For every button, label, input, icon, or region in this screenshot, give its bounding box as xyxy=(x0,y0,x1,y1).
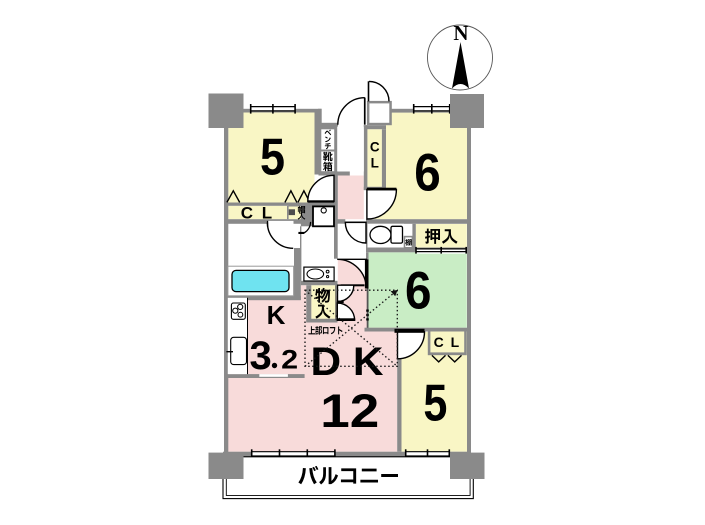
svg-text:2: 2 xyxy=(281,345,298,375)
svg-text:6: 6 xyxy=(414,144,441,203)
svg-text:12: 12 xyxy=(320,384,379,437)
svg-text:C L: C L xyxy=(241,203,274,222)
svg-text:3: 3 xyxy=(249,334,271,378)
svg-text:L: L xyxy=(371,156,379,171)
svg-text:6: 6 xyxy=(405,262,432,321)
svg-text:C: C xyxy=(370,140,380,155)
svg-text:K: K xyxy=(267,300,286,330)
svg-text:5: 5 xyxy=(423,375,447,433)
svg-text:N: N xyxy=(453,21,468,45)
svg-text:5: 5 xyxy=(260,129,285,187)
svg-text:C L: C L xyxy=(434,334,461,350)
